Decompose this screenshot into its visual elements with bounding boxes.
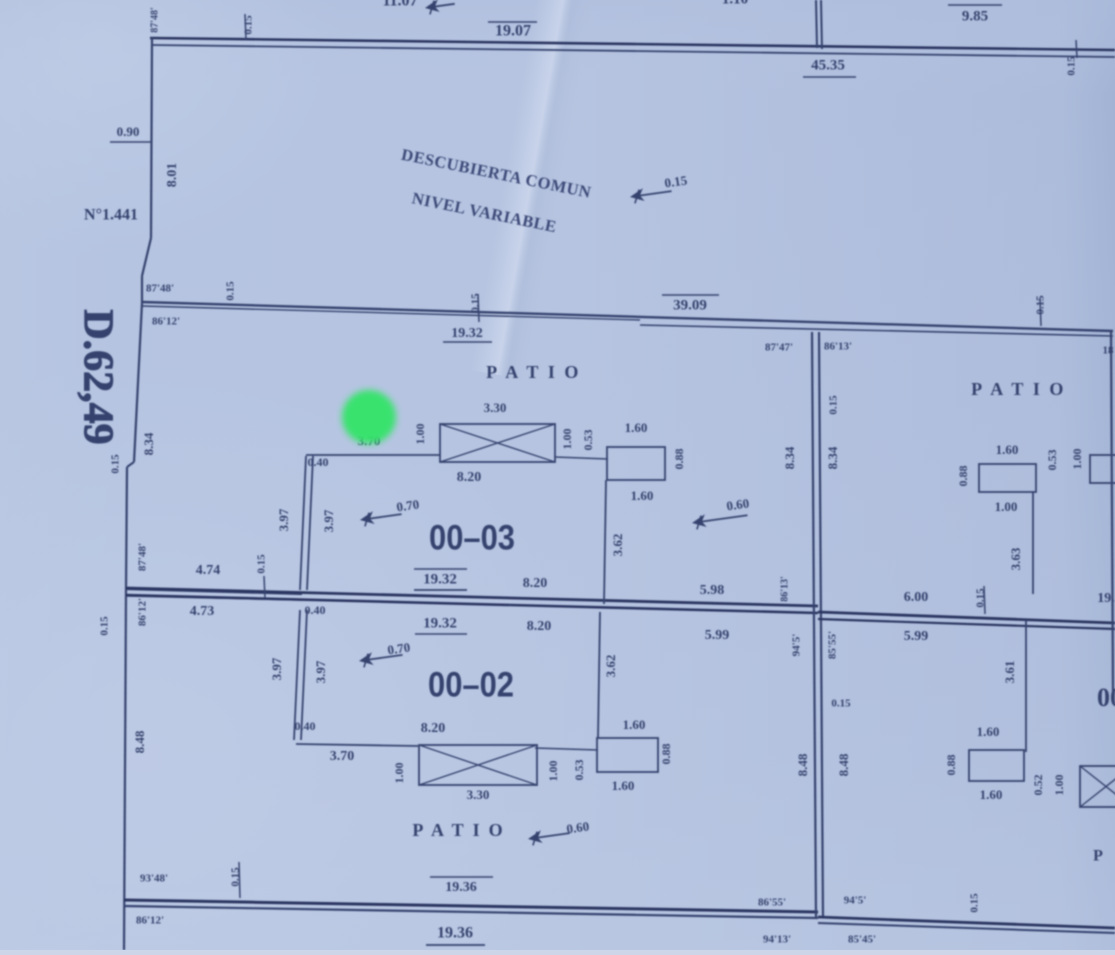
svg-text:86'55': 86'55' <box>758 897 786 909</box>
svg-text:0.40: 0.40 <box>308 455 329 469</box>
svg-text:86'13': 86'13' <box>779 576 790 602</box>
svg-text:1.60: 1.60 <box>980 787 1003 802</box>
svg-text:6.00: 6.00 <box>904 590 929 605</box>
svg-text:0.15: 0.15 <box>1066 56 1078 76</box>
svg-text:87'48': 87'48' <box>137 543 149 571</box>
svg-text:0.15: 0.15 <box>831 698 851 710</box>
svg-text:1.00: 1.00 <box>1070 449 1084 470</box>
svg-text:0.15: 0.15 <box>110 454 122 474</box>
svg-text:19.36: 19.36 <box>437 925 473 942</box>
svg-text:0.52: 0.52 <box>1031 775 1045 796</box>
svg-text:0.40: 0.40 <box>295 719 316 733</box>
svg-text:94'5': 94'5' <box>844 895 867 907</box>
svg-text:0.15: 0.15 <box>969 893 981 913</box>
svg-text:0.15: 0.15 <box>663 172 688 190</box>
svg-text:8.34: 8.34 <box>141 432 156 455</box>
svg-text:1.10: 1.10 <box>722 0 748 7</box>
svg-text:0.15: 0.15 <box>256 554 268 574</box>
svg-text:3.62: 3.62 <box>603 655 618 678</box>
svg-text:1.60: 1.60 <box>996 442 1019 457</box>
svg-text:11.07: 11.07 <box>382 0 417 10</box>
svg-text:3.61: 3.61 <box>1002 661 1017 684</box>
svg-text:8.48: 8.48 <box>836 753 851 776</box>
svg-text:00: 00 <box>1097 683 1115 712</box>
svg-text:19.07: 19.07 <box>495 23 531 40</box>
svg-text:45.35: 45.35 <box>811 57 845 73</box>
svg-text:0.53: 0.53 <box>1045 450 1059 471</box>
svg-text:19.32: 19.32 <box>423 571 457 587</box>
svg-text:1.60: 1.60 <box>625 420 648 435</box>
svg-text:0.70: 0.70 <box>395 496 420 514</box>
svg-text:3.62: 3.62 <box>610 534 625 557</box>
svg-text:00–02: 00–02 <box>428 665 514 704</box>
svg-text:1.60: 1.60 <box>977 724 1000 739</box>
svg-text:0.90: 0.90 <box>117 124 140 139</box>
svg-text:8.20: 8.20 <box>523 576 548 591</box>
svg-text:1.00: 1.00 <box>413 424 427 445</box>
svg-text:4.73: 4.73 <box>190 604 215 619</box>
svg-text:3.97: 3.97 <box>269 657 284 680</box>
svg-text:8.48: 8.48 <box>132 730 147 753</box>
svg-text:8.34: 8.34 <box>782 446 797 469</box>
svg-text:3.97: 3.97 <box>276 508 291 531</box>
svg-text:3.70: 3.70 <box>330 749 355 764</box>
svg-text:9.85: 9.85 <box>962 8 988 24</box>
svg-text:D.62,49: D.62,49 <box>74 309 120 444</box>
svg-text:5.99: 5.99 <box>705 628 730 643</box>
svg-text:85'45': 85'45' <box>848 934 876 946</box>
svg-text:3.30: 3.30 <box>467 787 490 802</box>
svg-text:8.20: 8.20 <box>527 619 552 634</box>
svg-text:87'48': 87'48' <box>149 7 160 33</box>
svg-text:0.53: 0.53 <box>581 430 595 451</box>
svg-text:18: 18 <box>1103 345 1115 357</box>
svg-text:87'48': 87'48' <box>146 283 174 295</box>
svg-text:1.00: 1.00 <box>995 499 1018 514</box>
svg-text:PATIO: PATIO <box>971 379 1073 399</box>
svg-text:19.36: 19.36 <box>445 880 477 895</box>
svg-text:0.15: 0.15 <box>99 616 111 636</box>
svg-text:0.60: 0.60 <box>725 495 750 513</box>
svg-text:8.20: 8.20 <box>457 470 482 485</box>
svg-text:5.99: 5.99 <box>904 629 929 644</box>
svg-text:85'55': 85'55' <box>827 631 839 659</box>
svg-text:1.00: 1.00 <box>1052 775 1066 796</box>
svg-text:86'13': 86'13' <box>824 341 852 353</box>
svg-text:N°1.441: N°1.441 <box>84 207 138 224</box>
svg-text:3.97: 3.97 <box>313 660 328 683</box>
svg-text:0.88: 0.88 <box>944 755 958 776</box>
svg-text:19.32: 19.32 <box>423 615 457 631</box>
svg-text:0.88: 0.88 <box>956 466 970 487</box>
svg-text:87'47': 87'47' <box>765 342 793 354</box>
svg-text:94'5': 94'5' <box>791 634 803 657</box>
svg-text:1.60: 1.60 <box>612 778 635 793</box>
svg-text:0.15: 0.15 <box>470 293 482 313</box>
svg-text:0.40: 0.40 <box>305 603 326 617</box>
svg-text:1.00: 1.00 <box>546 761 560 782</box>
svg-text:3.63: 3.63 <box>1008 547 1023 570</box>
svg-text:19.32: 19.32 <box>451 326 483 341</box>
svg-text:86'12': 86'12' <box>137 598 149 626</box>
svg-text:86'12': 86'12' <box>152 316 180 328</box>
svg-text:8.34: 8.34 <box>825 446 840 469</box>
svg-text:5.98: 5.98 <box>700 583 725 598</box>
svg-text:19.: 19. <box>1097 591 1115 606</box>
svg-text:3.30: 3.30 <box>484 400 507 415</box>
svg-text:0.15: 0.15 <box>975 588 987 608</box>
svg-text:0.70: 0.70 <box>386 639 411 657</box>
svg-text:86'12': 86'12' <box>136 915 164 927</box>
svg-text:0.53: 0.53 <box>572 760 586 781</box>
svg-text:0.15: 0.15 <box>1035 295 1047 315</box>
svg-text:8.48: 8.48 <box>795 753 810 776</box>
svg-text:93'48': 93'48' <box>140 873 168 885</box>
svg-text:0.88: 0.88 <box>659 744 673 765</box>
svg-text:3.97: 3.97 <box>321 509 336 532</box>
svg-text:1.60: 1.60 <box>631 488 654 503</box>
svg-text:PATIO: PATIO <box>486 362 588 382</box>
svg-text:1.00: 1.00 <box>392 763 406 784</box>
svg-text:8.01: 8.01 <box>165 163 180 188</box>
svg-text:PATIO: PATIO <box>412 820 511 840</box>
svg-text:8.20: 8.20 <box>421 721 446 736</box>
svg-text:0.15: 0.15 <box>230 867 242 887</box>
svg-text:0.15: 0.15 <box>225 281 237 301</box>
svg-text:4.74: 4.74 <box>196 563 221 578</box>
svg-text:P: P <box>1093 848 1103 865</box>
svg-text:0.60: 0.60 <box>565 818 590 836</box>
svg-text:0.88: 0.88 <box>672 449 686 470</box>
svg-text:39.09: 39.09 <box>673 297 707 313</box>
svg-text:1.00: 1.00 <box>560 429 574 450</box>
svg-text:94'13': 94'13' <box>763 934 791 946</box>
svg-text:0.15: 0.15 <box>828 395 840 415</box>
svg-text:0.15: 0.15 <box>243 15 255 35</box>
svg-text:00–03: 00–03 <box>429 518 515 557</box>
svg-text:1.60: 1.60 <box>623 717 646 732</box>
